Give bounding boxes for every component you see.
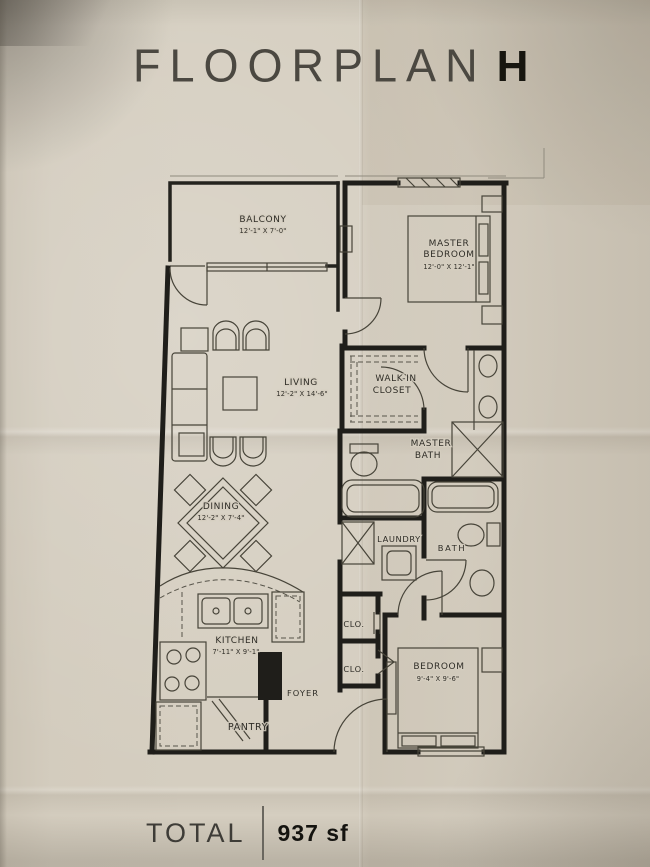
nightstand xyxy=(482,648,502,672)
context-lines xyxy=(170,148,544,178)
walk-in-closet-label-2: CLOSET xyxy=(373,386,412,396)
master-bedroom-door xyxy=(345,298,381,334)
total-label: TOTAL xyxy=(146,818,246,849)
master-bath-label-2: BATH xyxy=(415,451,441,461)
balcony-dims: 12'-1" X 7'-0" xyxy=(240,227,287,235)
floorplan-drawing: BALCONY 12'-1" X 7'-0" MASTER BEDROOM 12… xyxy=(0,0,650,867)
master-bedroom-dims: 12'-0" X 12'-1" xyxy=(423,263,474,271)
pillow xyxy=(402,736,436,746)
total-divider xyxy=(262,806,264,860)
pantry-label: PANTRY xyxy=(228,722,268,733)
master-bedroom-label-1: MASTER xyxy=(429,239,470,249)
total-value: 937 sf xyxy=(278,820,349,847)
living-dims: 12'-2" X 14'-6" xyxy=(276,390,327,398)
refrigerator xyxy=(156,702,201,750)
foyer-label: FOYER xyxy=(287,688,319,698)
nightstand xyxy=(482,306,502,324)
bath-door xyxy=(426,560,466,600)
laundry-label: LAUNDRY xyxy=(377,534,421,544)
dining-dims: 12'-2" X 7'-4" xyxy=(198,514,245,522)
nightstand xyxy=(482,196,502,212)
master-bedroom-label-2: BEDROOM xyxy=(423,250,474,260)
sofa xyxy=(172,353,207,461)
side-table xyxy=(181,328,208,351)
armchair xyxy=(213,321,239,350)
pillow xyxy=(479,262,488,294)
walk-in-closet-label-1: WALK-IN xyxy=(375,374,416,384)
toilet-tank xyxy=(487,523,500,546)
bath-label: BATH xyxy=(438,543,466,553)
pantry-door xyxy=(212,699,250,741)
counter xyxy=(272,592,304,642)
entry-door xyxy=(334,699,387,752)
bedroom-label: BEDROOM xyxy=(413,662,464,672)
sink xyxy=(470,570,494,596)
toilet xyxy=(351,452,377,476)
room-labels: BALCONY 12'-1" X 7'-0" MASTER BEDROOM 12… xyxy=(198,215,475,733)
closet-1-label: CLO. xyxy=(343,619,364,629)
sink xyxy=(479,355,497,377)
armchair xyxy=(243,321,269,350)
total-area-row: TOTAL 937 sf xyxy=(146,806,349,860)
dining-table xyxy=(178,478,268,568)
living-label: LIVING xyxy=(284,378,318,388)
armchair xyxy=(240,437,266,466)
side-table xyxy=(179,433,204,456)
balcony-door xyxy=(170,267,207,305)
kitchen-sink xyxy=(198,594,268,628)
closet-2-label: CLO. xyxy=(343,664,364,674)
hall-door xyxy=(424,348,468,392)
bedroom-dims: 9'-4" X 9'-6" xyxy=(417,675,460,683)
bedroom-door xyxy=(398,571,442,615)
coffee-table xyxy=(223,377,257,410)
pillow xyxy=(479,224,488,256)
balcony-label: BALCONY xyxy=(239,215,286,225)
kitchen-dims: 7'-11" X 9'-1" xyxy=(213,648,260,656)
pillow xyxy=(441,736,475,746)
kitchen-label: KITCHEN xyxy=(215,636,258,646)
master-bath-label-1: MASTER xyxy=(411,439,452,449)
floorplan-photo: FLOORPLAN H xyxy=(0,0,650,867)
armchair xyxy=(210,437,236,466)
dining-chairs xyxy=(174,474,271,571)
dresser xyxy=(387,662,396,714)
sink xyxy=(479,396,497,418)
dining-label: DINING xyxy=(203,502,239,512)
